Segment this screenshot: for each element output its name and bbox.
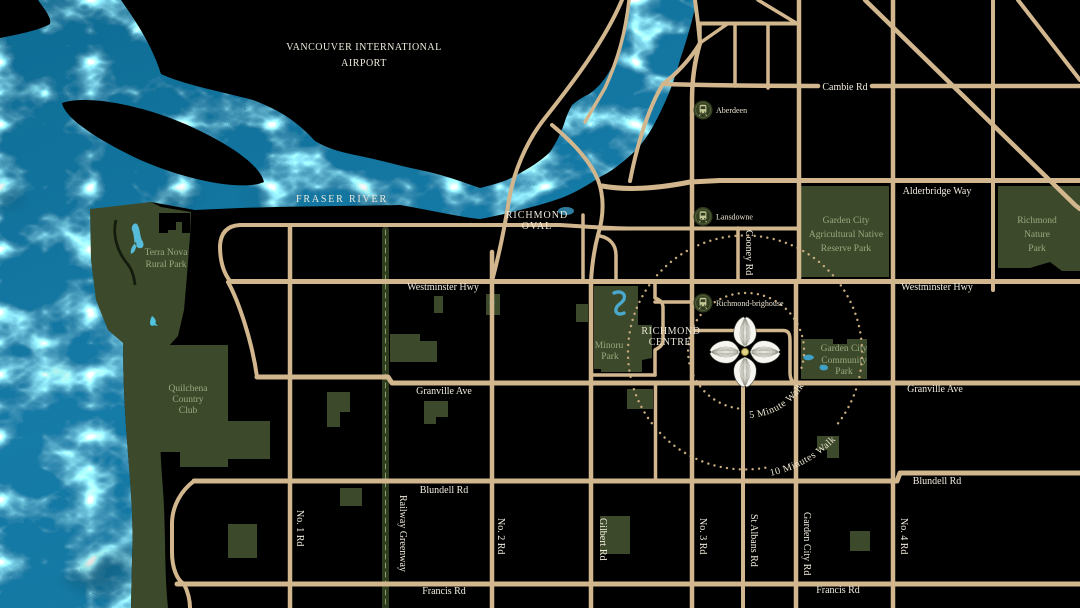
svg-text:RICHMOND: RICHMOND xyxy=(641,326,700,337)
svg-text:Blundell Rd: Blundell Rd xyxy=(913,476,962,487)
svg-text:Reserve Park: Reserve Park xyxy=(821,244,872,254)
svg-text:Nature: Nature xyxy=(1024,230,1050,240)
svg-text:OVAL: OVAL xyxy=(522,221,552,232)
svg-text:Francis Rd: Francis Rd xyxy=(422,586,466,597)
svg-text:Westminster Hwy: Westminster Hwy xyxy=(407,282,479,293)
svg-text:No. 3 Rd: No. 3 Rd xyxy=(697,518,708,554)
svg-text:Aberdeen: Aberdeen xyxy=(716,106,747,115)
svg-text:CENTRE: CENTRE xyxy=(649,337,692,348)
svg-text:Park: Park xyxy=(601,352,619,362)
svg-text:Park: Park xyxy=(1028,244,1046,254)
svg-text:Gilbert Rd: Gilbert Rd xyxy=(597,518,608,561)
svg-text:Granville Ave: Granville Ave xyxy=(907,384,963,395)
svg-text:Garden City: Garden City xyxy=(823,216,870,226)
svg-text:Alderbridge Way: Alderbridge Way xyxy=(903,186,972,197)
svg-text:Country: Country xyxy=(172,395,203,405)
svg-text:Quilchena: Quilchena xyxy=(168,384,208,394)
svg-text:Agricultural Native: Agricultural Native xyxy=(809,230,883,240)
svg-text:Community: Community xyxy=(821,356,867,366)
svg-text:Garden City: Garden City xyxy=(821,344,868,354)
svg-text:Rural Park: Rural Park xyxy=(146,260,187,270)
svg-text:Railway Greenway: Railway Greenway xyxy=(397,495,408,572)
svg-text:Lansdowne: Lansdowne xyxy=(716,213,753,222)
svg-text:Westminster Hwy: Westminster Hwy xyxy=(901,282,973,293)
svg-text:Minoru: Minoru xyxy=(595,341,624,351)
svg-text:VANCOUVER INTERNATIONAL: VANCOUVER INTERNATIONAL xyxy=(286,42,441,53)
svg-text:Terra Nova: Terra Nova xyxy=(145,248,189,258)
svg-text:Club: Club xyxy=(179,406,198,416)
svg-text:Richmond: Richmond xyxy=(1017,216,1057,226)
svg-text:Cambie Rd: Cambie Rd xyxy=(822,82,867,93)
svg-text:No. 4 Rd: No. 4 Rd xyxy=(898,518,909,554)
svg-text:St Albans Rd: St Albans Rd xyxy=(748,514,759,567)
svg-text:Richmond-brighouse: Richmond-brighouse xyxy=(716,299,784,308)
svg-text:Francis Rd: Francis Rd xyxy=(816,585,860,596)
svg-text:No. 1 Rd: No. 1 Rd xyxy=(294,510,305,546)
svg-text:FRASER RIVER: FRASER RIVER xyxy=(296,194,388,205)
svg-text:Blundell Rd: Blundell Rd xyxy=(420,485,469,496)
svg-text:RICHMOND: RICHMOND xyxy=(506,210,568,221)
svg-text:AIRPORT: AIRPORT xyxy=(341,58,387,69)
svg-text:Granville Ave: Granville Ave xyxy=(416,386,472,397)
svg-text:Garden City Rd: Garden City Rd xyxy=(801,512,812,575)
svg-text:Cooney Rd: Cooney Rd xyxy=(743,230,754,275)
svg-text:No. 2 Rd: No. 2 Rd xyxy=(495,518,506,554)
svg-text:Park: Park xyxy=(835,367,853,377)
